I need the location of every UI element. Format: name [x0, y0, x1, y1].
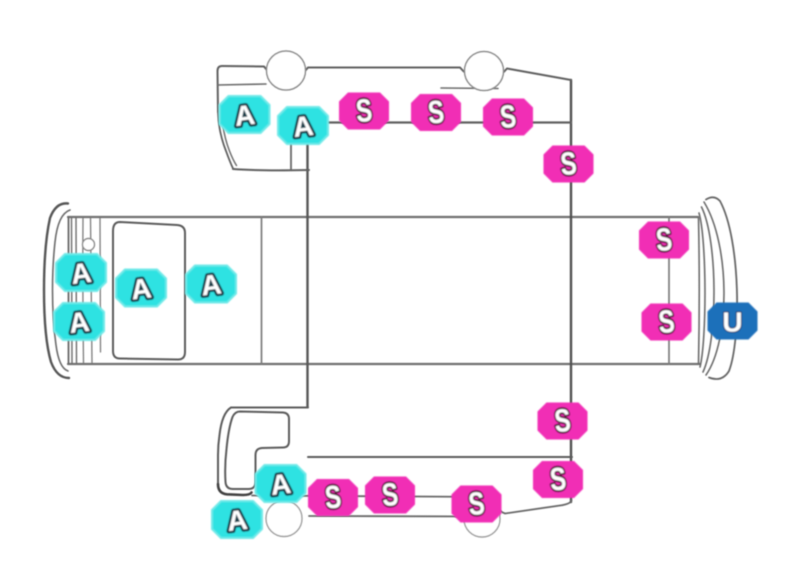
- svg-text:S: S: [654, 221, 673, 258]
- svg-text:U: U: [722, 307, 742, 338]
- svg-text:S: S: [323, 478, 342, 515]
- svg-text:A: A: [269, 468, 293, 501]
- svg-text:A: A: [291, 110, 315, 143]
- svg-text:S: S: [559, 145, 578, 182]
- svg-text:S: S: [548, 460, 567, 497]
- svg-text:S: S: [354, 92, 373, 129]
- svg-text:A: A: [225, 504, 249, 537]
- svg-text:S: S: [467, 485, 486, 522]
- svg-text:A: A: [69, 257, 93, 290]
- svg-text:A: A: [233, 99, 257, 132]
- svg-text:A: A: [129, 272, 153, 305]
- svg-text:S: S: [498, 98, 517, 135]
- svg-text:S: S: [553, 402, 572, 439]
- svg-text:S: S: [657, 303, 676, 340]
- svg-text:S: S: [426, 93, 445, 130]
- svg-text:A: A: [199, 268, 223, 301]
- svg-text:A: A: [67, 306, 91, 339]
- svg-text:S: S: [380, 476, 399, 513]
